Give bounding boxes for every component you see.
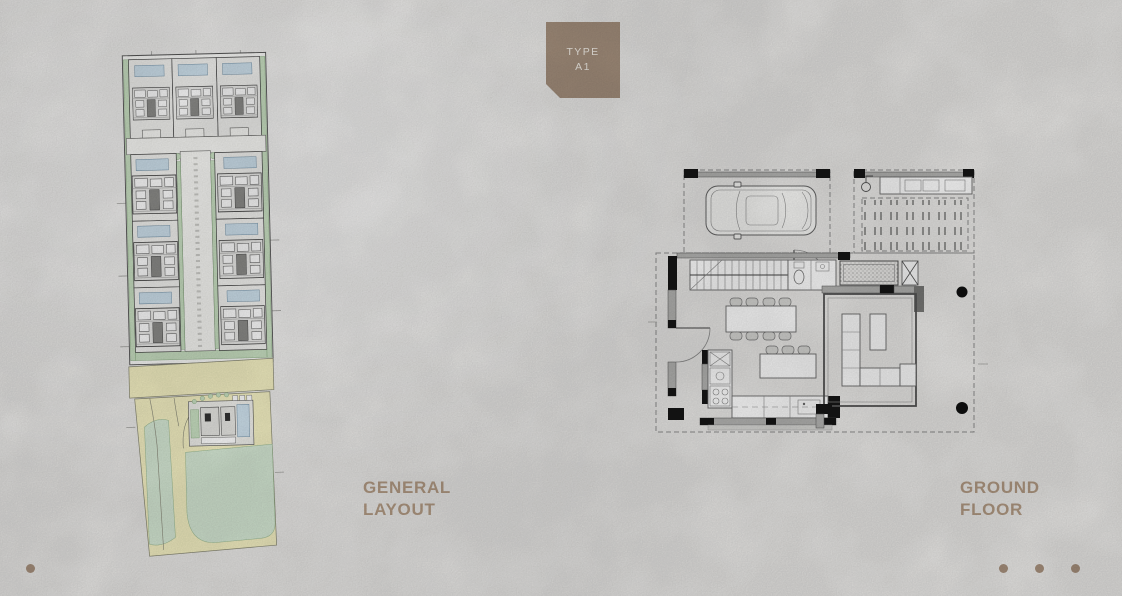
pagination-dot[interactable] xyxy=(1071,564,1080,573)
floor-plan-drawing xyxy=(648,164,988,442)
villa-column-right xyxy=(215,151,267,350)
lawn-area xyxy=(185,444,275,543)
pool xyxy=(227,290,260,302)
pool xyxy=(139,292,172,304)
type-badge-line1: TYPE xyxy=(566,45,599,60)
general-layout-label: GENERAL LAYOUT xyxy=(363,477,451,521)
pool xyxy=(237,404,250,437)
type-badge: TYPE A1 xyxy=(546,22,620,98)
corner-parcel xyxy=(135,391,277,556)
pagination-dot[interactable] xyxy=(26,564,35,573)
wc xyxy=(788,260,836,290)
structural-column xyxy=(956,402,968,414)
pagination-left xyxy=(0,564,35,573)
type-badge-line2: A1 xyxy=(575,60,591,75)
general-layout-label-line2: LAYOUT xyxy=(363,499,451,521)
pool xyxy=(224,157,257,169)
planter xyxy=(840,261,898,285)
villa-column-left xyxy=(131,154,181,353)
brochure-slide: TYPE A1 xyxy=(0,0,1122,596)
pagination-right xyxy=(999,564,1080,573)
villa-block xyxy=(122,52,273,364)
outdoor-kitchen-counter xyxy=(880,177,972,194)
pergola-grid xyxy=(862,200,968,250)
pool xyxy=(138,225,171,237)
coffee-table xyxy=(870,314,886,350)
column-x xyxy=(902,261,918,285)
pool xyxy=(178,64,208,76)
general-layout-label-line1: GENERAL xyxy=(363,477,451,499)
structural-column xyxy=(957,287,968,298)
dining-table-small xyxy=(760,346,816,378)
pergola-terrace xyxy=(854,169,974,253)
pool xyxy=(225,223,258,235)
villa-top-row xyxy=(128,57,261,139)
pool xyxy=(136,159,169,171)
general-layout-panel xyxy=(116,50,284,562)
ground-floor-label: GROUND FLOOR xyxy=(960,477,1040,521)
ground-floor-panel xyxy=(648,164,988,442)
toilet-icon xyxy=(794,270,804,284)
ground-floor-label-line2: FLOOR xyxy=(960,499,1040,521)
pagination-dot[interactable] xyxy=(1035,564,1044,573)
pagination-dot[interactable] xyxy=(999,564,1008,573)
living-room xyxy=(816,285,924,428)
staircase xyxy=(690,260,788,290)
site-plan-drawing xyxy=(116,50,284,562)
shower-icon xyxy=(862,176,874,192)
car-icon xyxy=(706,182,816,239)
dining-table-large xyxy=(726,298,796,340)
ground-floor-label-line1: GROUND xyxy=(960,477,1040,499)
pool xyxy=(135,65,165,77)
interior xyxy=(648,252,988,432)
pool xyxy=(222,63,252,75)
